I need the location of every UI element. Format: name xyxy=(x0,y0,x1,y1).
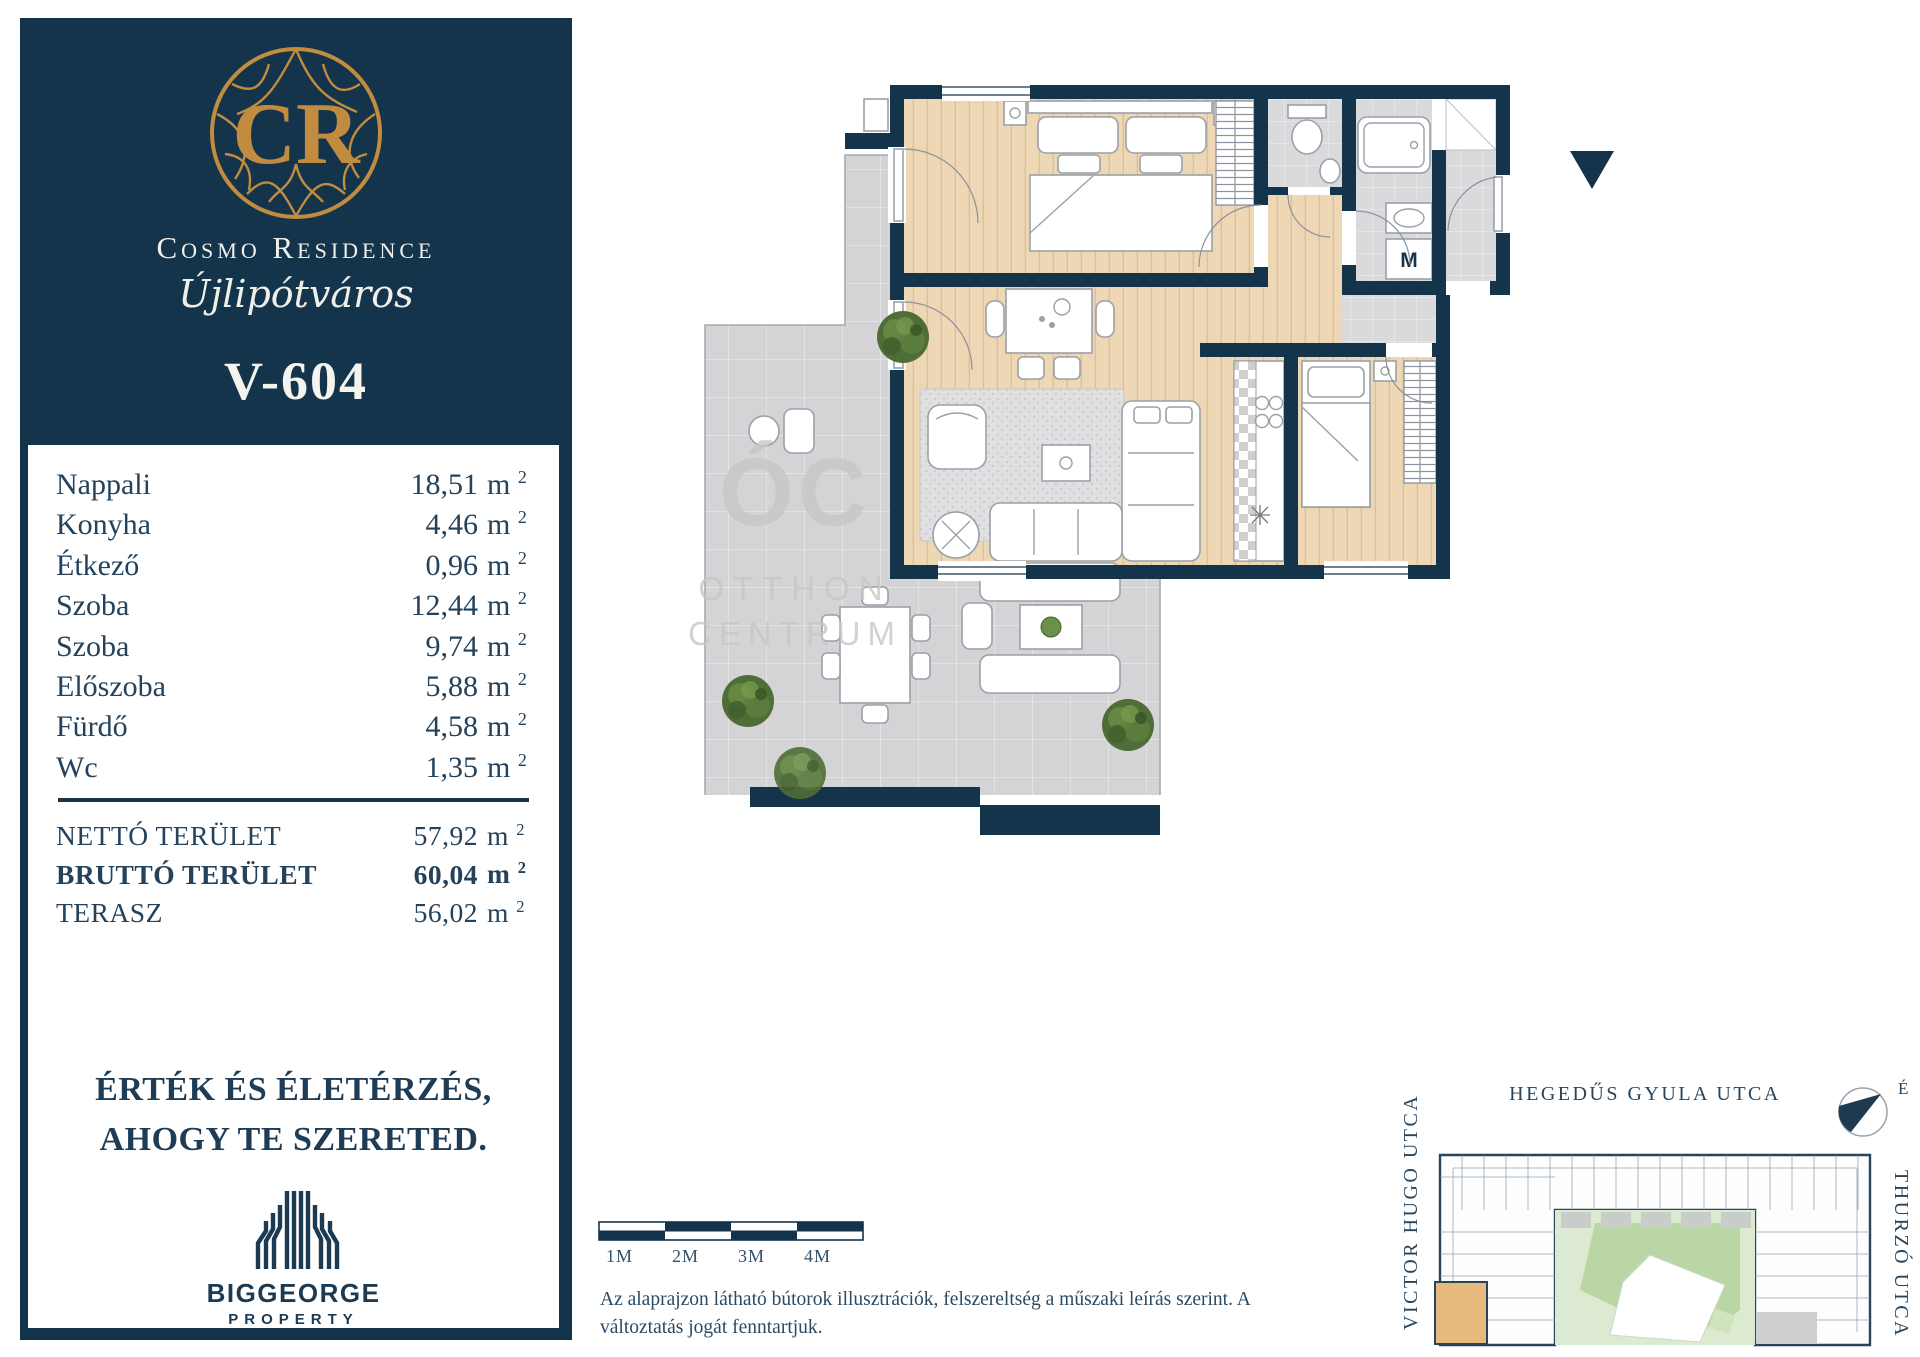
site-plan-drawing: HEGEDŰS GYULA UTCA É xyxy=(1395,1060,1920,1357)
site-plan: HEGEDŰS GYULA UTCA É xyxy=(1395,1060,1920,1357)
room-area: 5,88 xyxy=(386,670,478,703)
table-divider xyxy=(58,798,529,802)
watermark: ÓC OTTHON CENTRUM xyxy=(690,439,902,652)
svg-text:1M: 1M xyxy=(606,1246,633,1266)
street-label-top: HEGEDŰS GYULA UTCA xyxy=(1509,1081,1781,1105)
svg-text:2M: 2M xyxy=(672,1246,699,1266)
table-row: Konyha4,46m 2 xyxy=(56,501,539,541)
room-name: Előszoba xyxy=(56,670,166,703)
table-row: Nappali18,51m 2 xyxy=(56,461,539,501)
floor-plan: M xyxy=(690,55,1690,860)
svg-text:OTTHON: OTTHON xyxy=(698,570,891,607)
tagline-line1: ÉRTÉK ÉS ÉLETÉRZÉS, xyxy=(28,1065,559,1115)
svg-text:CENTRUM: CENTRUM xyxy=(690,615,902,652)
building-outline xyxy=(1435,1155,1870,1345)
flyer-page: CR Cosmo Residence Újlipótváros V-604 Na… xyxy=(0,0,1920,1357)
compass-label: É xyxy=(1898,1079,1908,1098)
table-row: Szoba9,74m 2 xyxy=(56,623,539,663)
room-area: 18,51 xyxy=(386,468,478,501)
totals-table: NETTÓ TERÜLET57,92m 2 BRUTTÓ TERÜLET60,0… xyxy=(28,814,559,928)
logo-monogram: CR xyxy=(232,86,361,183)
compass-icon: É xyxy=(1838,1079,1908,1136)
disclaimer: Az alaprajzon látható bútorok illusztrác… xyxy=(600,1286,1390,1341)
tree-icon xyxy=(1102,699,1154,751)
disclaimer-line1: Az alaprajzon látható bútorok illusztrác… xyxy=(600,1286,1390,1314)
table-row: Étkező0,96m 2 xyxy=(56,542,539,582)
svg-text:ÓC: ÓC xyxy=(719,439,871,546)
room-area: 4,58 xyxy=(386,710,478,743)
sidebar: CR Cosmo Residence Újlipótváros V-604 Na… xyxy=(20,18,572,1340)
tree-icon xyxy=(722,675,774,727)
table-row: Fürdő4,58m 2 xyxy=(56,703,539,743)
room-name: Szoba xyxy=(56,630,129,663)
room-area: 0,96 xyxy=(386,549,478,582)
developer-name: BIGGEORGE xyxy=(28,1278,559,1309)
floor-plan-drawing: M xyxy=(690,55,1690,855)
unit-id: V-604 xyxy=(20,350,572,412)
entrance-arrow-icon xyxy=(1570,151,1614,189)
scale-bar: 1M 2M 3M 4M xyxy=(598,1216,878,1268)
tagline-line2: AHOGY TE SZERETED. xyxy=(28,1115,559,1165)
street-label-left: VICTOR HUGO UTCA xyxy=(1400,1094,1422,1330)
room-area: 4,46 xyxy=(386,508,478,541)
room-name: Konyha xyxy=(56,508,151,541)
svg-text:4M: 4M xyxy=(804,1246,831,1266)
developer-logo: BIGGEORGE PROPERTY xyxy=(28,1183,559,1328)
room-name: Szoba xyxy=(56,589,129,622)
room-name: Étkező xyxy=(56,549,139,582)
total-row-terasz: TERASZ56,02m 2 xyxy=(56,891,539,929)
disclaimer-line2: változtatás jogát fenntartjuk. xyxy=(600,1314,1390,1342)
room-area: 1,35 xyxy=(386,751,478,784)
developer-division: PROPERTY xyxy=(28,1311,559,1328)
room-area: 12,44 xyxy=(386,589,478,622)
room-name: Fürdő xyxy=(56,710,128,743)
brand-subtitle: Újlipótváros xyxy=(20,272,572,316)
table-row: Szoba12,44m 2 xyxy=(56,582,539,622)
sidebar-header: CR Cosmo Residence Újlipótváros V-604 xyxy=(20,18,572,445)
room-area: 9,74 xyxy=(386,630,478,663)
biggeorge-icon xyxy=(246,1183,342,1269)
total-row-netto: NETTÓ TERÜLET57,92m 2 xyxy=(56,814,539,852)
total-row-brutto: BRUTTÓ TERÜLET60,04m 2 xyxy=(56,852,539,890)
tree-icon xyxy=(877,311,929,363)
svg-text:3M: 3M xyxy=(738,1246,765,1266)
tagline: ÉRTÉK ÉS ÉLETÉRZÉS, AHOGY TE SZERETED. xyxy=(28,1065,559,1165)
street-label-right: THURZÓ UTCA xyxy=(1890,1170,1914,1338)
table-row: Wc1,35m 2 xyxy=(56,744,539,784)
table-row: Előszoba5,88m 2 xyxy=(56,663,539,703)
cosmo-residence-logo-icon: CR xyxy=(207,44,385,222)
sidebar-body: Nappali18,51m 2 Konyha4,46m 2 Étkező0,96… xyxy=(20,445,572,1340)
room-name: Wc xyxy=(56,751,98,784)
room-table: Nappali18,51m 2 Konyha4,46m 2 Étkező0,96… xyxy=(28,445,559,784)
room-name: Nappali xyxy=(56,468,151,501)
brand-name: Cosmo Residence xyxy=(20,230,572,266)
highlighted-unit xyxy=(1435,1282,1487,1344)
shrub-icon xyxy=(774,747,826,799)
